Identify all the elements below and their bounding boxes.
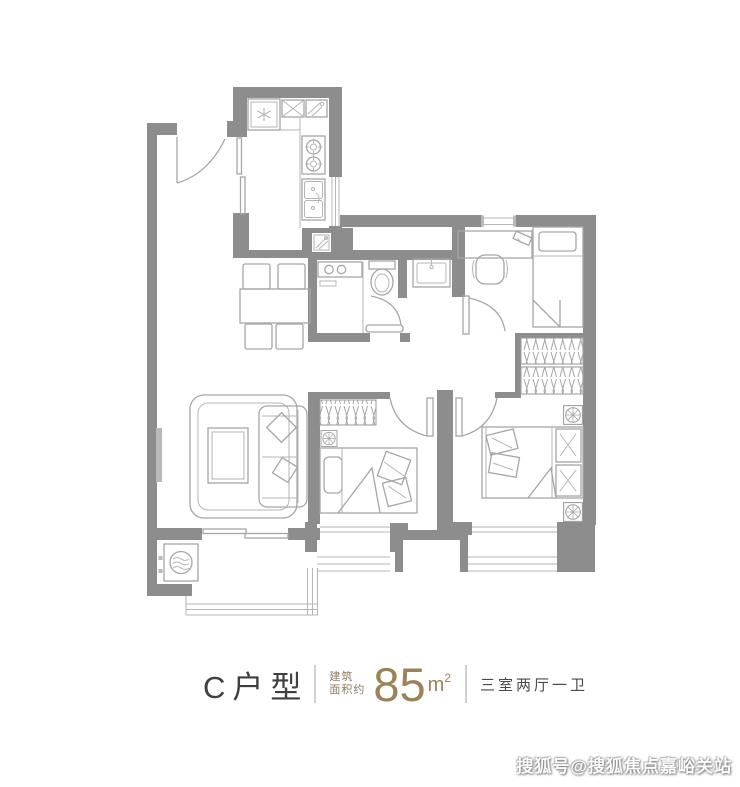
ac-unit-icon bbox=[321, 431, 337, 447]
nightstand-lamp-icon bbox=[564, 406, 583, 425]
area-label-line1: 建筑 bbox=[329, 671, 353, 683]
layout-description: 三室两厅一卫 bbox=[480, 674, 588, 695]
bathroom-door-icon bbox=[366, 296, 403, 332]
dining-area bbox=[240, 264, 310, 349]
master-bedroom bbox=[482, 338, 583, 521]
dining-table bbox=[240, 289, 310, 323]
living-room bbox=[156, 395, 307, 518]
desk-chair-icon bbox=[473, 255, 508, 284]
area-unit-sup: 2 bbox=[444, 671, 451, 685]
kitchen-window-icon bbox=[332, 177, 339, 226]
dining-chair bbox=[276, 324, 303, 349]
entry-door-icon bbox=[177, 137, 225, 183]
area-label-line2: 面积约 bbox=[329, 684, 365, 696]
sofa-icon bbox=[259, 406, 307, 507]
washing-machine-icon bbox=[159, 544, 199, 581]
balcony-windows-icon bbox=[186, 568, 318, 615]
kitchen-sink-icon bbox=[302, 179, 325, 220]
desk-icon bbox=[458, 231, 532, 258]
stove-icon bbox=[302, 136, 325, 174]
bedroom2-bay-window-icon bbox=[317, 527, 390, 571]
bedroom-3 bbox=[458, 227, 583, 327]
master-bay-window-icon bbox=[468, 527, 557, 571]
bedroom-2 bbox=[320, 400, 417, 513]
master-door-icon bbox=[456, 398, 497, 436]
area-label: 建筑 面积约 bbox=[329, 671, 365, 697]
fridge-icon bbox=[248, 99, 280, 130]
dining-chair bbox=[278, 264, 305, 289]
toilet-icon bbox=[369, 261, 395, 295]
sohu-watermark: 搜狐号@搜狐焦点嘉峪关站 bbox=[516, 752, 732, 777]
bedroom2-door-icon bbox=[390, 398, 433, 436]
dining-chair bbox=[245, 324, 272, 349]
caption-divider bbox=[465, 665, 467, 703]
tv-icon bbox=[156, 428, 162, 482]
double-bed-icon bbox=[320, 448, 417, 513]
balcony bbox=[159, 544, 199, 581]
area-unit: m2 bbox=[428, 671, 451, 697]
bathroom bbox=[318, 261, 395, 333]
floorplan-page: C户型 建筑 面积约 85 m2 三室两厅一卫 搜狐号@搜狐焦点嘉峪关站 bbox=[0, 0, 740, 787]
area-value: 85 bbox=[373, 661, 425, 708]
nightstand-lamp-icon bbox=[564, 503, 583, 522]
caption-divider bbox=[314, 665, 316, 703]
wardrobe-icon bbox=[521, 338, 583, 364]
wardrobe-icon bbox=[320, 400, 376, 425]
wardrobe-icon bbox=[521, 367, 583, 394]
caption-bar: C户型 建筑 面积约 85 m2 三室两厅一卫 bbox=[203, 658, 588, 710]
water-heater-icon bbox=[312, 233, 331, 252]
kitchen-sliding-door-icon bbox=[237, 138, 245, 214]
bedroom3-door-icon bbox=[463, 296, 505, 334]
bedroom3-window-icon bbox=[481, 216, 516, 227]
balcony-sliding-door-icon bbox=[203, 529, 288, 538]
double-bed-icon bbox=[482, 427, 583, 498]
unit-name: C户型 bbox=[203, 662, 308, 707]
wall-ac-icon bbox=[513, 231, 532, 245]
bathroom-vanity-icon bbox=[318, 262, 362, 286]
wash-basin-icon bbox=[413, 259, 450, 287]
coffee-table-icon bbox=[208, 428, 248, 483]
dining-chair bbox=[243, 264, 270, 289]
single-bed-icon bbox=[533, 227, 583, 327]
